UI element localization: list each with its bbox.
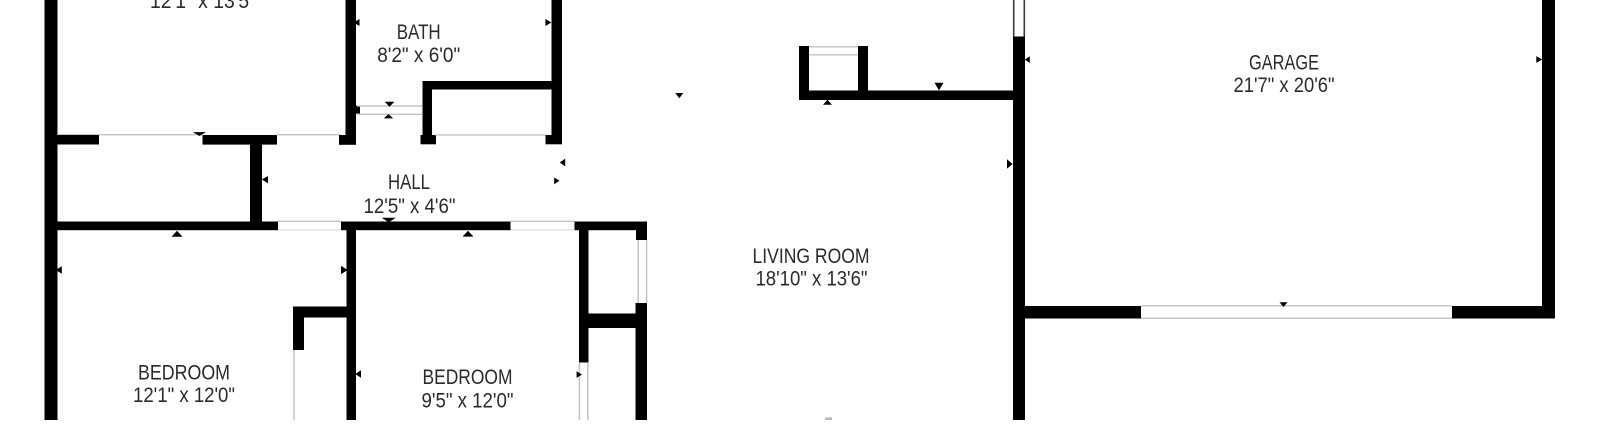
svg-text:8'2" x 6'0": 8'2" x 6'0" bbox=[377, 44, 460, 67]
svg-text:LIVING ROOM: LIVING ROOM bbox=[753, 245, 870, 268]
svg-text:BATH: BATH bbox=[397, 21, 441, 44]
svg-text:21'7" x 20'6": 21'7" x 20'6" bbox=[1234, 74, 1335, 97]
svg-text:HALL: HALL bbox=[388, 171, 430, 194]
svg-text:12'1" x 12'0": 12'1" x 12'0" bbox=[133, 384, 235, 407]
svg-text:BEDROOM: BEDROOM bbox=[138, 362, 230, 385]
svg-text:9'5" x 12'0": 9'5" x 12'0" bbox=[422, 390, 514, 413]
svg-text:GARAGE: GARAGE bbox=[1249, 52, 1319, 75]
svg-text:18'10" x 13'6": 18'10" x 13'6" bbox=[756, 268, 868, 291]
svg-text:12'1" x 13'5": 12'1" x 13'5" bbox=[150, 0, 256, 13]
svg-text:12'5" x 4'6": 12'5" x 4'6" bbox=[364, 195, 456, 218]
svg-text:BEDROOM: BEDROOM bbox=[423, 366, 513, 389]
